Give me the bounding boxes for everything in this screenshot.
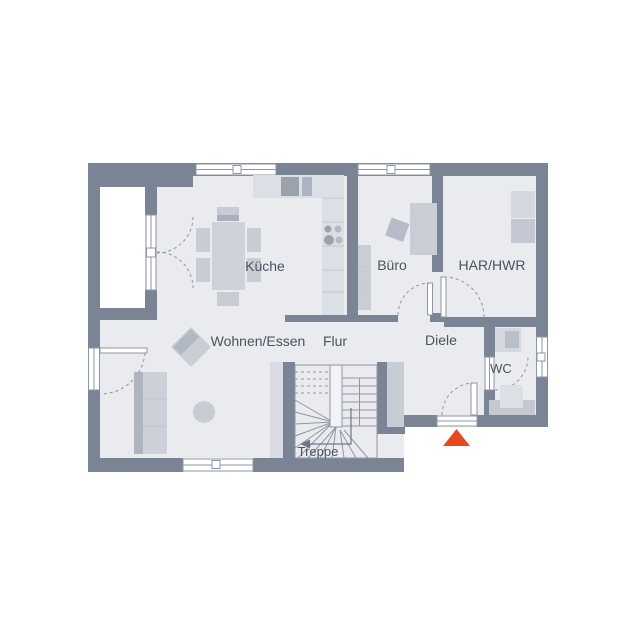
window-wc-icon: [537, 337, 548, 377]
washer-icon: [511, 191, 535, 218]
dining-chair: [217, 292, 239, 306]
terrace-niche: [100, 187, 145, 308]
dryer-icon: [511, 219, 535, 243]
room-label-treppe: Treppe: [298, 444, 339, 459]
wc-sink-icon: [505, 331, 519, 348]
room-label-kueche: Küche: [245, 258, 285, 274]
dining-table: [212, 222, 245, 290]
room-label-wohnen: Wohnen/Essen: [211, 333, 306, 349]
sofa: [134, 372, 167, 454]
kitchen-appliance: [302, 177, 312, 196]
room-label-diele: Diele: [425, 332, 457, 348]
room-label-har: HAR/HWR: [459, 257, 526, 273]
room-label-wc: WC: [490, 361, 512, 376]
hall-wardrobe: [387, 362, 404, 427]
utility-appliances: [511, 191, 535, 243]
round-rug: [193, 401, 215, 423]
toilet-icon: [500, 385, 523, 408]
chimney-block: [270, 362, 283, 458]
window-buero-icon: [358, 164, 430, 175]
room-label-buero: Büro: [377, 257, 407, 273]
stair-void: [330, 365, 342, 427]
dining-chair: [247, 228, 261, 252]
entrance-arrow-icon: [443, 429, 470, 446]
office-shelf: [358, 245, 371, 310]
floor-plan-page: Küche Büro HAR/HWR Wohnen/Essen Flur Die…: [0, 0, 636, 636]
kitchen-sink-icon: [281, 177, 299, 196]
dining-chair: [196, 258, 210, 282]
window-kitchen-icon: [196, 164, 276, 175]
desk: [410, 203, 437, 255]
window-living-icon: [183, 459, 253, 471]
floor-plan: Küche Büro HAR/HWR Wohnen/Essen Flur Die…: [0, 0, 636, 636]
dining-chair-back: [217, 215, 239, 221]
room-label-flur: Flur: [323, 333, 347, 349]
dining-chair: [196, 228, 210, 252]
